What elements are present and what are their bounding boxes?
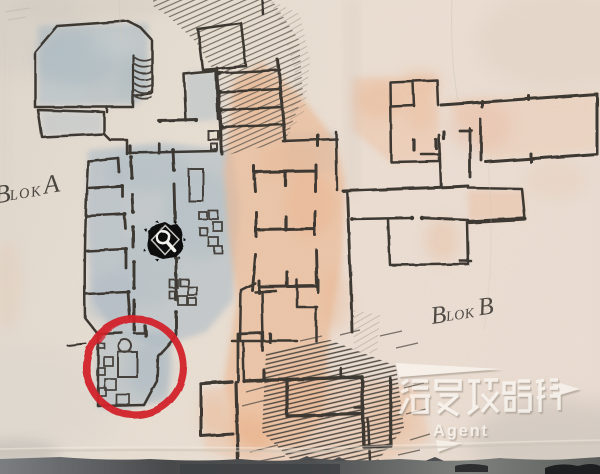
svg-text:Agent: Agent (433, 422, 489, 440)
